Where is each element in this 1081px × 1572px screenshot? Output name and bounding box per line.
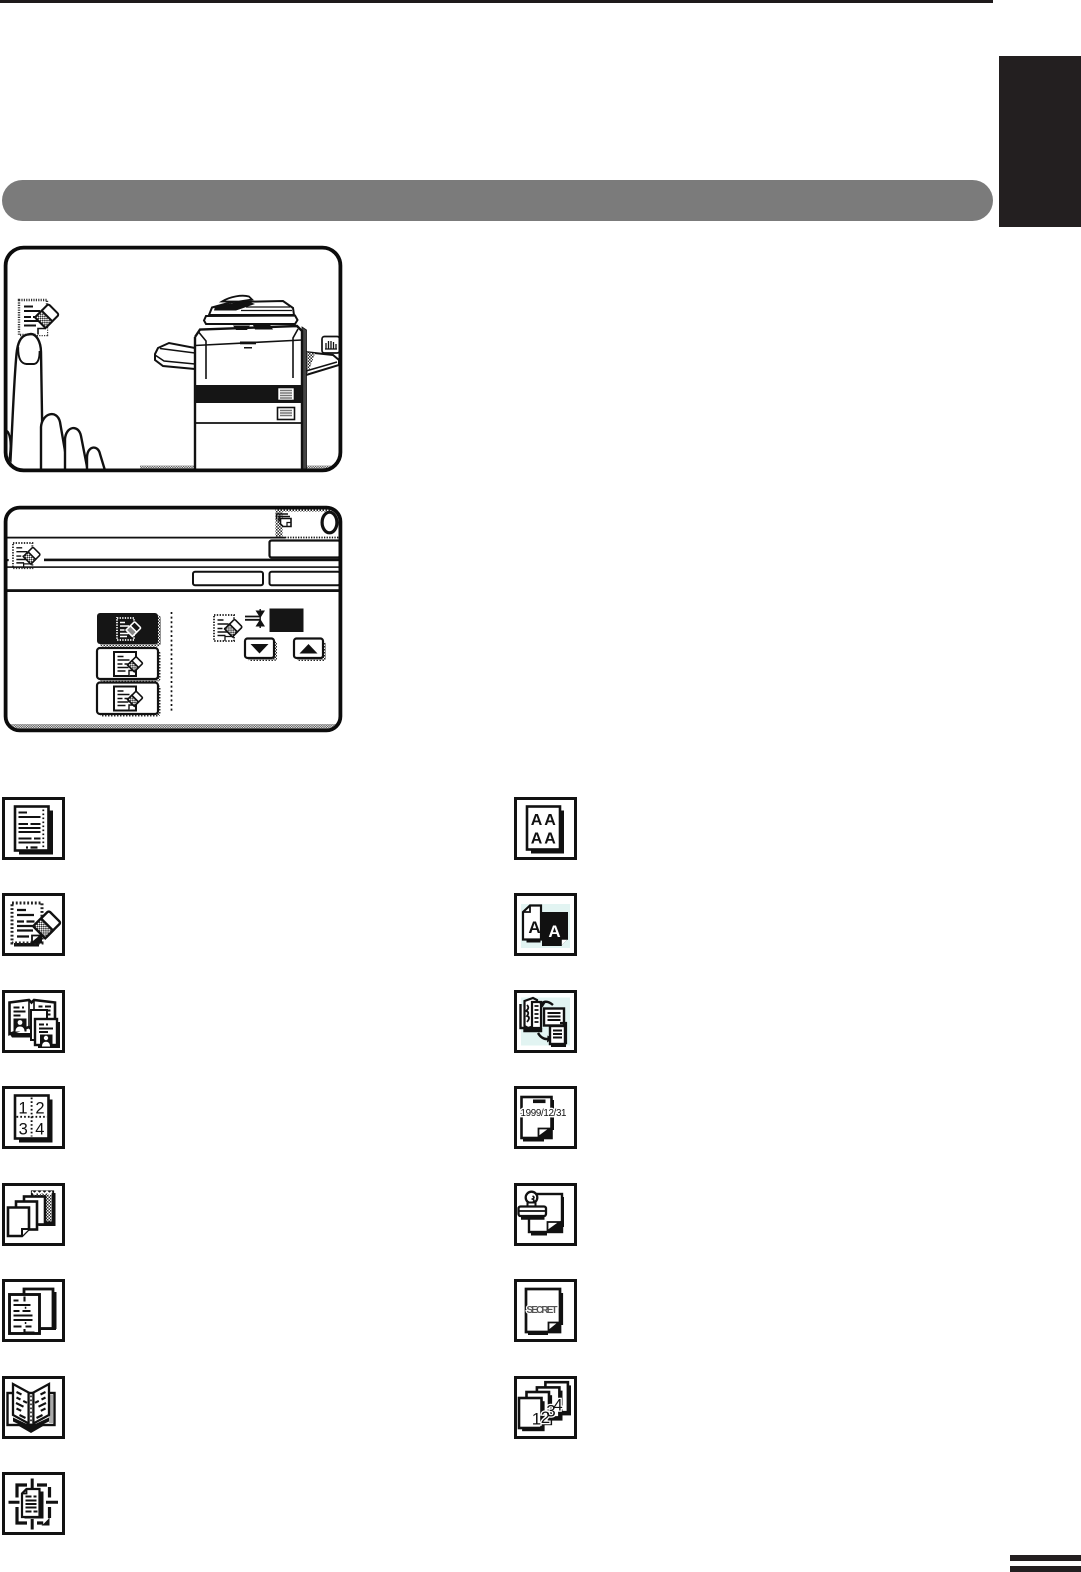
svg-text:3: 3 <box>19 1121 28 1139</box>
svg-text:4: 4 <box>553 1396 562 1415</box>
svg-text:A: A <box>544 831 556 848</box>
svg-text:2: 2 <box>35 1100 44 1118</box>
svg-text:A: A <box>531 812 543 829</box>
svg-text:A: A <box>548 922 560 941</box>
svg-text:A: A <box>528 918 540 937</box>
svg-text:A: A <box>531 831 543 848</box>
svg-text:SECRET: SECRET <box>527 1305 558 1316</box>
svg-text:1999/12/31: 1999/12/31 <box>521 1108 567 1119</box>
svg-text:A: A <box>544 812 556 829</box>
svg-text:1: 1 <box>18 1100 27 1118</box>
svg-text:4: 4 <box>35 1121 44 1139</box>
